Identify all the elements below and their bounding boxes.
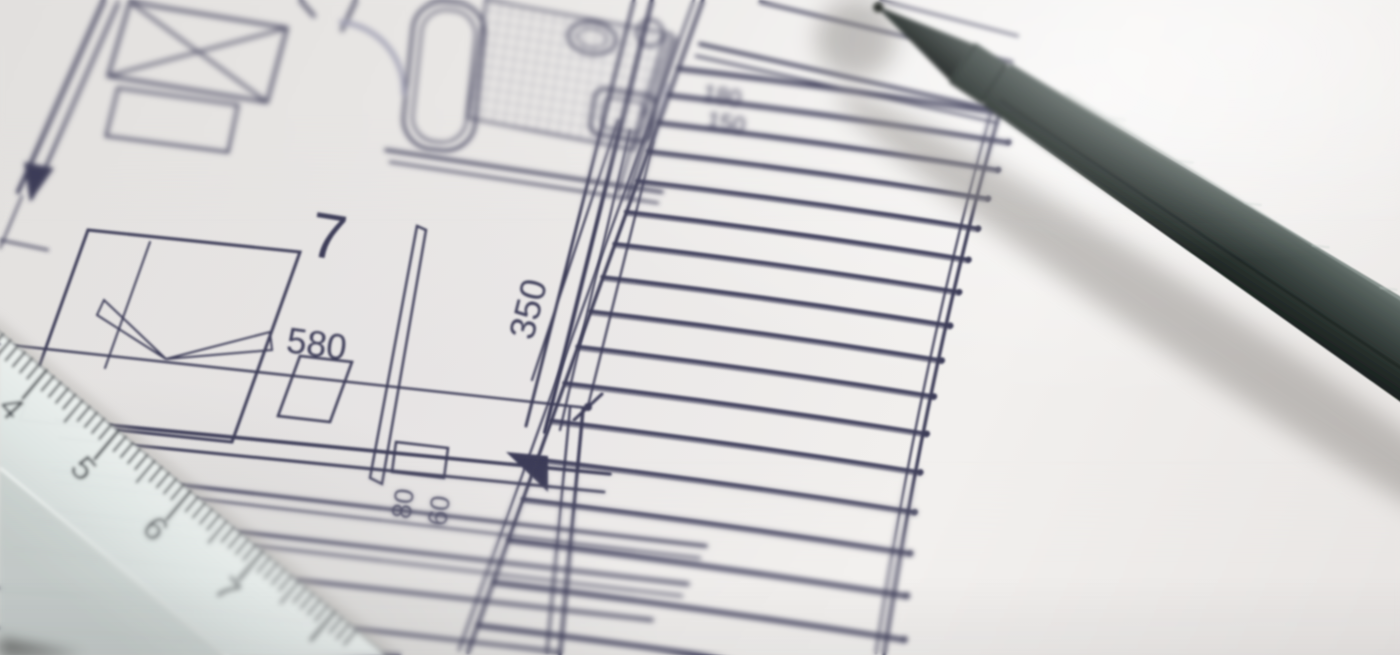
- plank-end: [912, 509, 918, 515]
- dresser-outline: [106, 88, 238, 152]
- bathtub-inner: [410, 8, 478, 145]
- plank-end: [956, 289, 962, 295]
- bed-divider: [105, 242, 150, 368]
- door-swing-arc: [341, 22, 404, 94]
- plank-end: [939, 357, 945, 363]
- plank-end: [907, 550, 913, 556]
- photo-floor-plan-scene: 180 150 7 580: [0, 0, 1400, 655]
- door-jamb: [300, 0, 314, 16]
- plank-end: [975, 225, 981, 231]
- plank-end: [901, 636, 907, 642]
- room-number-label: 7: [305, 198, 351, 275]
- plank-end: [904, 592, 910, 598]
- wall-line: [18, 0, 104, 192]
- plank-end: [965, 256, 971, 262]
- plank-end: [924, 431, 930, 437]
- plank-end: [1005, 139, 1011, 145]
- bed-fold-mark: [97, 300, 166, 359]
- witness-line: [0, 240, 48, 250]
- ruler: 4 5 6 7: [0, 320, 392, 655]
- closet-and-furniture: [0, 0, 287, 250]
- floor-plan-drawing: 180 150 7 580: [0, 0, 1400, 655]
- closet-diagonal: [108, 28, 287, 76]
- bathroom-area: 180 150: [300, 0, 747, 203]
- wall-marker: [24, 162, 54, 202]
- pen: [774, 0, 1400, 655]
- dimension-label-60: 60: [422, 494, 456, 528]
- plank-end: [931, 393, 937, 399]
- plank-end: [947, 322, 953, 328]
- plank-end: [917, 469, 923, 475]
- bed-fold-mark: [166, 332, 272, 359]
- dimension-label-580: 580: [284, 319, 349, 368]
- dimension-label-80: 80: [386, 487, 420, 521]
